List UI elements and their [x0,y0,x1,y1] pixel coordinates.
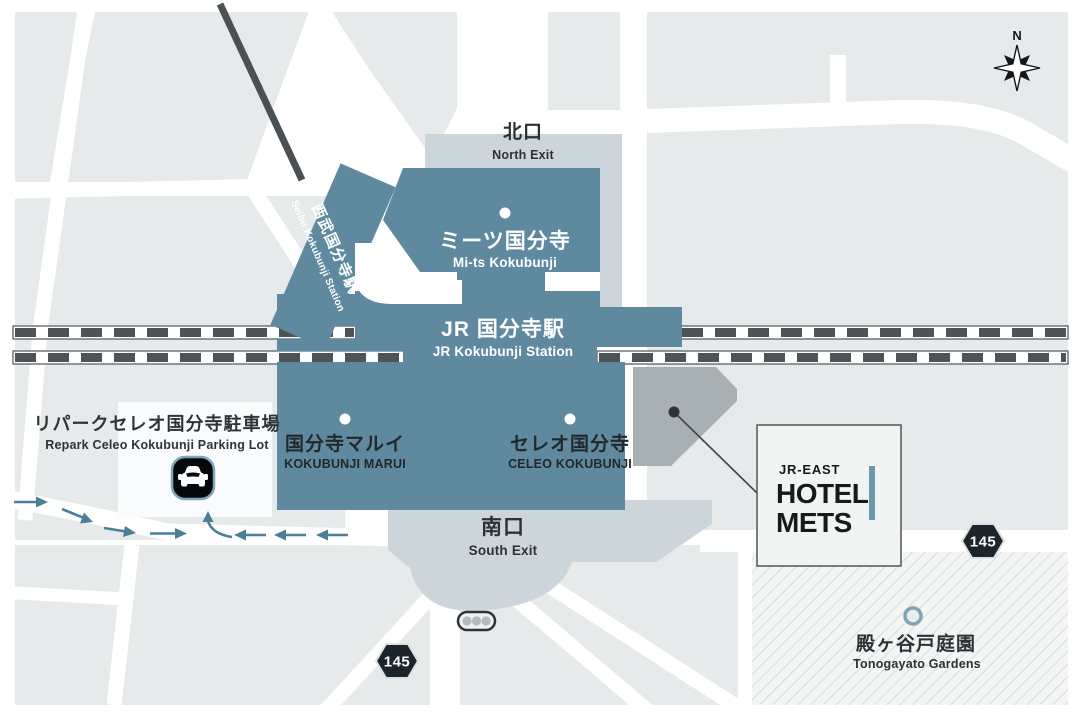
marui-label-jp: 国分寺マルイ [285,433,405,455]
north-exit-label-en: North Exit [492,148,554,162]
hotel-accent-bar [869,466,875,520]
marui-label-en: KOKUBUNJI MARUI [284,457,406,471]
jr-station-label-jp: JR 国分寺駅 [441,317,565,341]
garden-label-jp: 殿ヶ谷戸庭園 [855,632,976,655]
route-badge-south: 145 [376,644,418,678]
hotel-location-dot [669,407,680,418]
south-exit-label-en: South Exit [469,543,538,558]
traffic-light-icon [458,612,495,630]
celeo-label-jp: セレオ国分寺 [510,433,630,455]
garden-area [752,552,1068,705]
route-badge-south-number: 145 [384,654,411,671]
mits-dot [500,208,511,219]
jr-station-label-en: JR Kokubunji Station [433,344,574,359]
hotel-brand-label: JR-EAST [779,462,840,477]
route-badge-east-number: 145 [970,534,997,551]
compass-north-label: N [1012,28,1021,43]
hotel-name-line1: HOTEL [776,478,869,509]
map-canvas: JR-EAST HOTEL METS 145 [0,0,1080,717]
parking-label-en: Repark Celeo Kokubunji Parking Lot [45,438,269,452]
hotel-name-line2: METS [776,507,852,538]
hotel-mets-callout: JR-EAST HOTEL METS [757,425,901,566]
garden-marker [905,608,921,624]
north-exit-label-jp: 北口 [503,121,543,143]
route-badge-east: 145 [962,524,1004,558]
car-icon [172,457,214,499]
garden-label-en: Tonogayato Gardens [853,657,981,671]
mits-label-jp: ミーツ国分寺 [439,229,571,253]
marui-dot [340,414,351,425]
parking-label-jp: リパークセレオ国分寺駐車場 [34,413,281,434]
south-exit-label-jp: 南口 [481,515,525,539]
station-area-map: JR-EAST HOTEL METS 145 [0,0,1080,717]
celeo-dot [565,414,576,425]
mits-label-en: Mi-ts Kokubunji [453,255,557,270]
celeo-label-en: CELEO KOKUBUNJI [508,457,632,471]
